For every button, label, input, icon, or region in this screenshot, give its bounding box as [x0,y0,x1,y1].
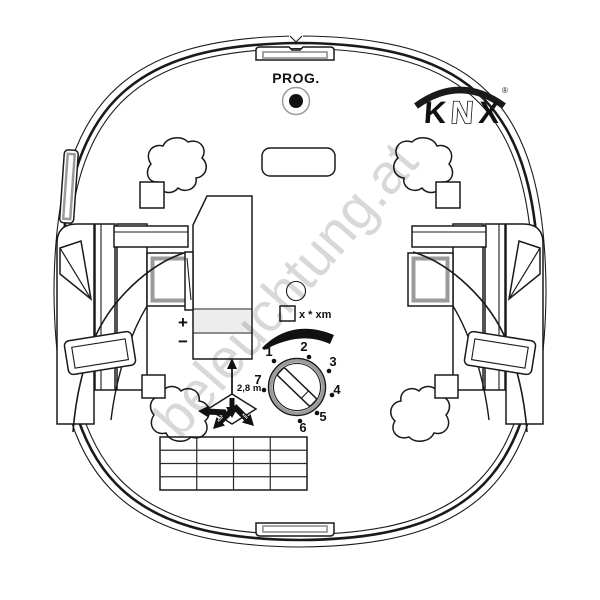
dial-number-3: 3 [329,354,336,369]
label-plate [262,148,335,176]
knx-letter-x: X [478,95,501,130]
prog-label: PROG. [272,70,320,86]
clip-square-bottom-right [435,375,458,398]
product-drawing: + − 2,8 m xm xm x * xm [0,0,600,600]
prog-button[interactable] [289,94,303,108]
clip-square-top-right [436,182,460,208]
dial-dot-6 [298,419,303,424]
knx-letter-n: N [450,95,475,130]
minus-label: − [178,332,188,351]
dial-dot-2 [307,355,312,360]
dial-number-7: 7 [254,372,261,387]
plus-label: + [178,313,188,332]
dial-dot-3 [327,369,332,374]
bottom-tab [256,523,334,536]
dial-dot-5 [315,411,320,416]
dial-number-4: 4 [333,382,341,397]
dial-dot-7 [262,388,267,393]
dial-dot-1 [272,359,277,364]
clip-square-top-left [140,182,164,208]
top-bar [114,226,188,247]
dial-number-5: 5 [319,409,326,424]
dial-dot-4 [330,393,335,398]
knx-letter-k: K [423,95,448,130]
rotary-dial[interactable] [269,359,326,416]
registered-mark: ® [502,86,508,95]
dial-number-2: 2 [300,339,307,354]
presence-detector-drawing: + − 2,8 m xm xm x * xm [0,0,600,600]
